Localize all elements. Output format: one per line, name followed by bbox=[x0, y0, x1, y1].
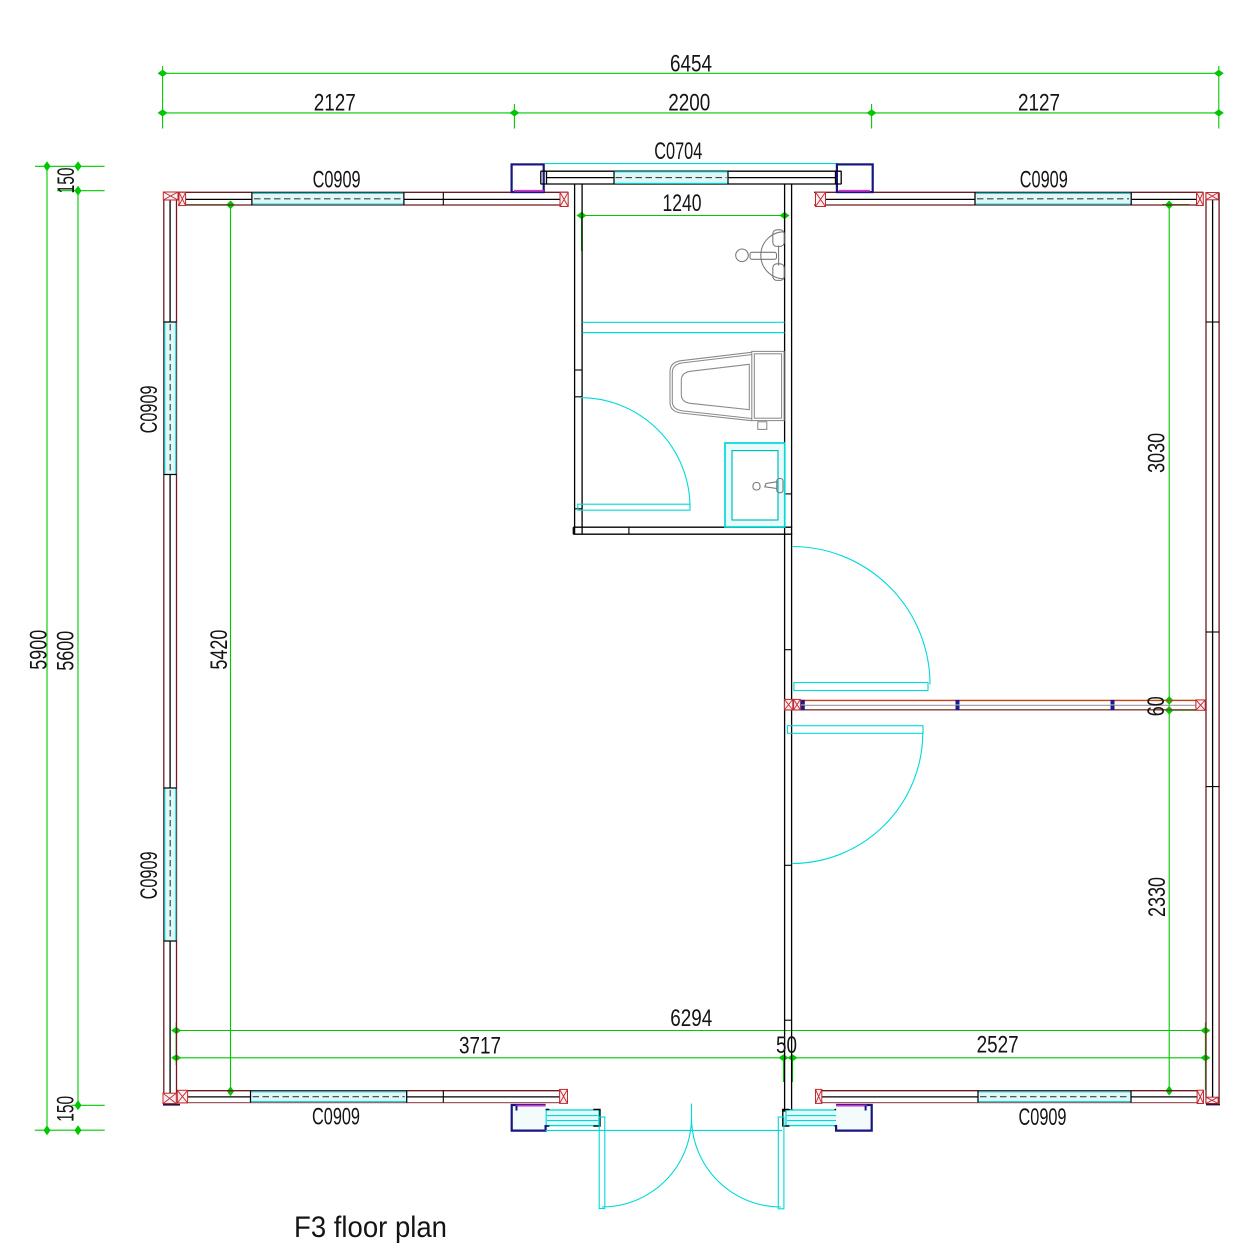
svg-text:6454: 6454 bbox=[670, 51, 712, 78]
svg-text:3717: 3717 bbox=[459, 1032, 501, 1059]
svg-text:2330: 2330 bbox=[1144, 877, 1171, 917]
svg-text:C0909: C0909 bbox=[313, 167, 361, 194]
svg-text:F3 floor plan: F3 floor plan bbox=[294, 1211, 447, 1244]
svg-text:C0909: C0909 bbox=[136, 851, 163, 899]
svg-text:60: 60 bbox=[1143, 696, 1170, 716]
svg-text:2527: 2527 bbox=[977, 1031, 1019, 1058]
svg-text:2127: 2127 bbox=[314, 89, 356, 116]
svg-text:2200: 2200 bbox=[668, 89, 710, 116]
svg-text:5600: 5600 bbox=[52, 631, 79, 671]
svg-text:C0909: C0909 bbox=[1020, 167, 1068, 194]
svg-text:C0909: C0909 bbox=[312, 1104, 360, 1131]
svg-text:50: 50 bbox=[776, 1032, 797, 1059]
svg-text:C0704: C0704 bbox=[654, 138, 702, 165]
svg-text:6294: 6294 bbox=[670, 1005, 712, 1032]
svg-text:1240: 1240 bbox=[663, 190, 702, 217]
svg-text:150: 150 bbox=[53, 167, 80, 193]
svg-text:5900: 5900 bbox=[25, 630, 52, 670]
svg-text:150: 150 bbox=[53, 1096, 80, 1122]
svg-text:5420: 5420 bbox=[206, 630, 233, 670]
svg-text:2127: 2127 bbox=[1018, 89, 1060, 116]
svg-text:C0909: C0909 bbox=[136, 385, 163, 433]
svg-text:3030: 3030 bbox=[1144, 433, 1171, 473]
svg-text:C0909: C0909 bbox=[1019, 1104, 1067, 1131]
